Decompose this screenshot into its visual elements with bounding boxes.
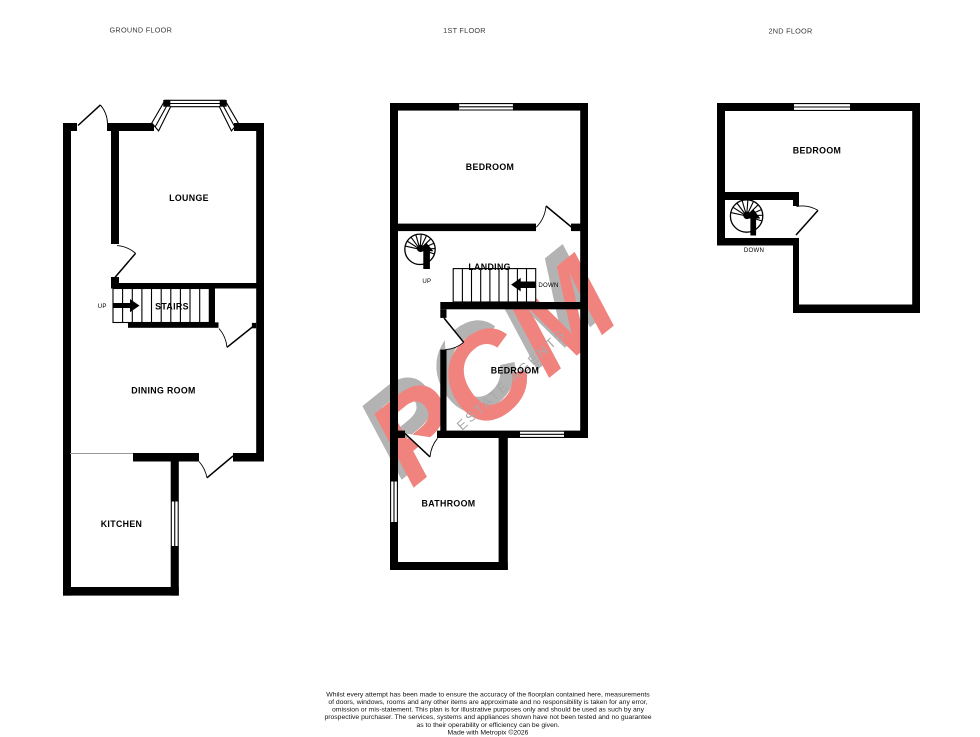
svg-text:prospective purchaser. The ser: prospective purchaser. The services, sys… [324, 714, 651, 721]
svg-text:DOWN: DOWN [538, 282, 558, 289]
svg-text:STAIRS: STAIRS [155, 301, 189, 311]
svg-text:2ND FLOOR: 2ND FLOOR [768, 26, 812, 35]
svg-text:BEDROOM: BEDROOM [793, 145, 841, 155]
svg-text:as to their operability or eff: as to their operability or efficiency ca… [416, 722, 559, 729]
svg-text:BEDROOM: BEDROOM [491, 366, 539, 376]
svg-text:LOUNGE: LOUNGE [169, 193, 209, 203]
svg-text:DINING ROOM: DINING ROOM [131, 386, 195, 396]
svg-text:Made with Metropix ©2026: Made with Metropix ©2026 [448, 728, 529, 736]
svg-text:DOWN: DOWN [744, 247, 764, 254]
svg-text:omission or mis-statement. Thi: omission or mis-statement. This plan is … [332, 707, 645, 714]
svg-text:UP: UP [422, 278, 431, 285]
svg-text:KITCHEN: KITCHEN [101, 519, 143, 529]
svg-text:UP: UP [98, 303, 107, 310]
svg-text:LANDING: LANDING [468, 262, 511, 272]
svg-text:of doors, windows, rooms and a: of doors, windows, rooms and any other i… [328, 699, 647, 706]
svg-text:BEDROOM: BEDROOM [466, 162, 514, 172]
svg-text:GROUND FLOOR: GROUND FLOOR [110, 26, 173, 35]
svg-text:1ST FLOOR: 1ST FLOOR [443, 26, 486, 35]
svg-text:Whilst every attempt has been: Whilst every attempt has been made to en… [326, 691, 650, 698]
svg-text:BATHROOM: BATHROOM [422, 498, 476, 508]
